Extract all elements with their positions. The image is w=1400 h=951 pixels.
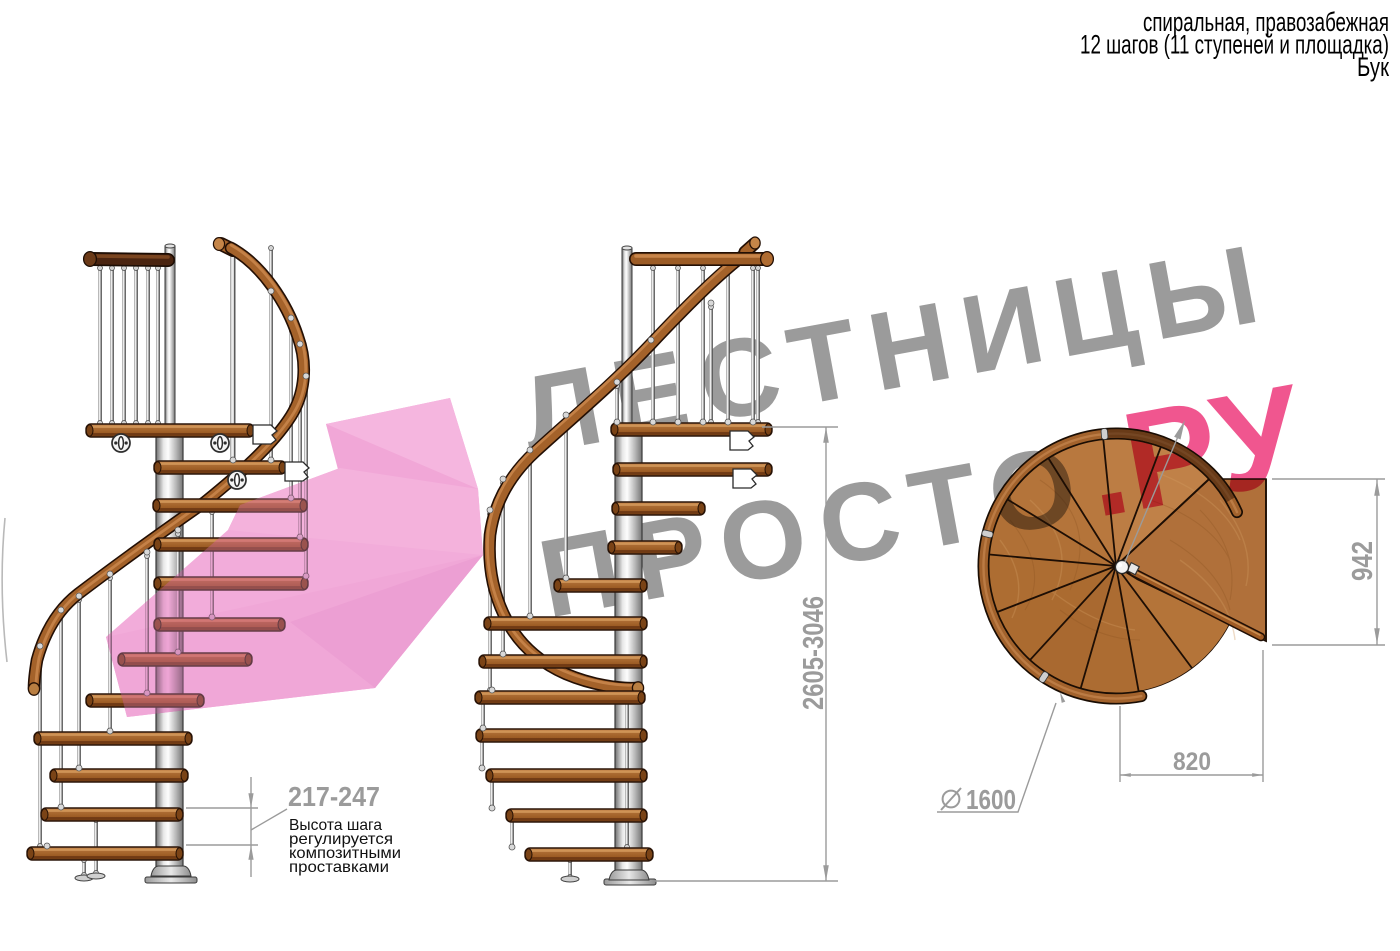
svg-text:1600: 1600 xyxy=(966,784,1016,815)
svg-text:2605-3046: 2605-3046 xyxy=(798,596,830,710)
svg-text:12 шагов (11 ступеней и площад: 12 шагов (11 ступеней и площадка) xyxy=(1080,30,1389,60)
svg-text:проставками: проставками xyxy=(289,859,389,876)
svg-text:820: 820 xyxy=(1173,748,1211,776)
svg-text:942: 942 xyxy=(1347,541,1379,581)
svg-text:Бук: Бук xyxy=(1357,52,1389,82)
svg-text:217-247: 217-247 xyxy=(288,781,380,812)
